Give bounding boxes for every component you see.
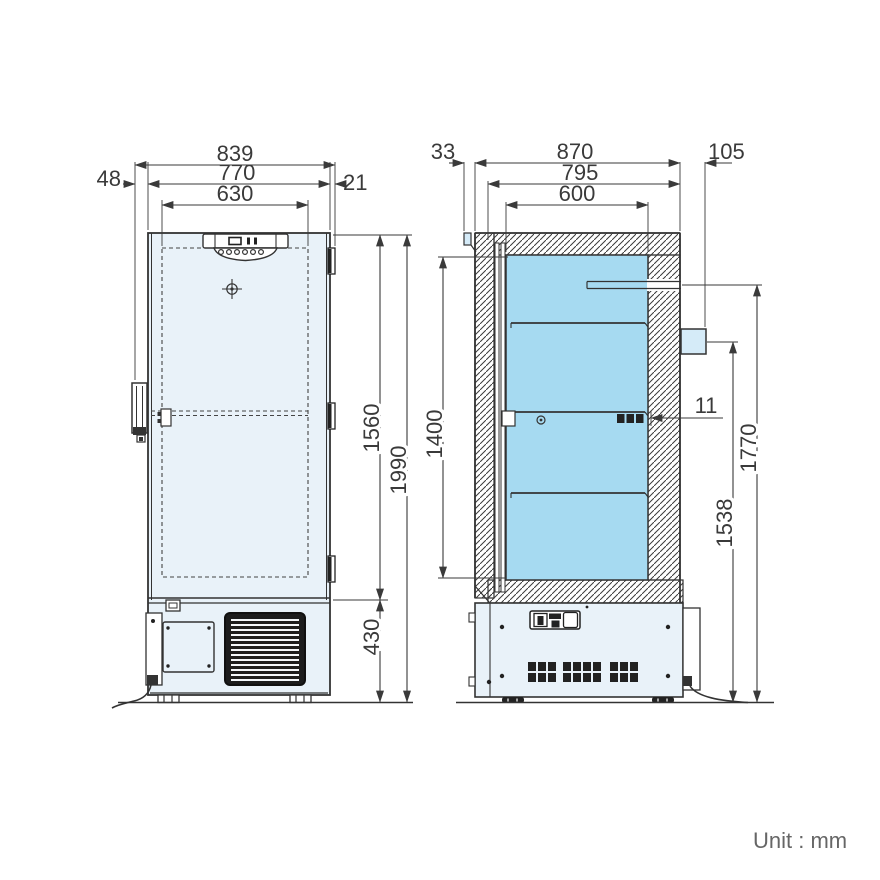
hinge-top (328, 248, 335, 274)
bottom-wall (488, 580, 683, 603)
dim-lower-port-height: 1538 (712, 499, 737, 548)
leveling-feet (158, 695, 311, 703)
side-access-strip (146, 613, 162, 685)
compartment-latch (166, 600, 180, 611)
dim-chamber-depth: 600 (559, 181, 596, 206)
drawing-canvas: 839 770 48 21 630 1560 1990 430 (0, 0, 880, 880)
hinge-bottom (328, 556, 335, 582)
dim-chamber-height: 1400 (422, 410, 447, 459)
dim-base-height: 430 (359, 619, 384, 656)
unit-label: Unit : mm (753, 828, 847, 853)
terminal-blocks (617, 414, 644, 423)
door-handle (132, 383, 147, 442)
door-heater-block (502, 411, 515, 426)
dim-upper-port-height: 1770 (736, 424, 761, 473)
technical-drawing: 839 770 48 21 630 1560 1990 430 (0, 0, 880, 880)
power-inlet (147, 675, 158, 685)
interior-chamber (502, 255, 648, 580)
side-machine-compartment (469, 603, 748, 703)
top-wall (494, 233, 680, 255)
power-cord (112, 685, 151, 708)
hinge-middle (328, 403, 335, 429)
dim-inner-width: 630 (217, 181, 254, 206)
dim-handle-offset: 48 (97, 166, 121, 191)
access-panel (163, 622, 214, 672)
port-cap (681, 329, 706, 354)
dim-handle-depth: 33 (431, 139, 455, 164)
dim-upper-height: 1560 (359, 404, 384, 453)
rear-power-inlet (683, 676, 692, 686)
front-view: 839 770 48 21 630 1560 1990 430 (97, 141, 413, 708)
side-view: 33 870 795 600 105 1400 1770 1538 11 (422, 139, 774, 703)
panel-display (229, 238, 241, 245)
dim-overall-height: 1990 (386, 446, 411, 495)
dim-rear-port-depth: 105 (708, 139, 745, 164)
door-insulation (475, 233, 494, 598)
vent-grille (225, 613, 305, 685)
switch-panel (530, 611, 580, 629)
dim-hinge-offset: 21 (343, 170, 367, 195)
dim-shelf-gap: 11 (695, 393, 718, 418)
